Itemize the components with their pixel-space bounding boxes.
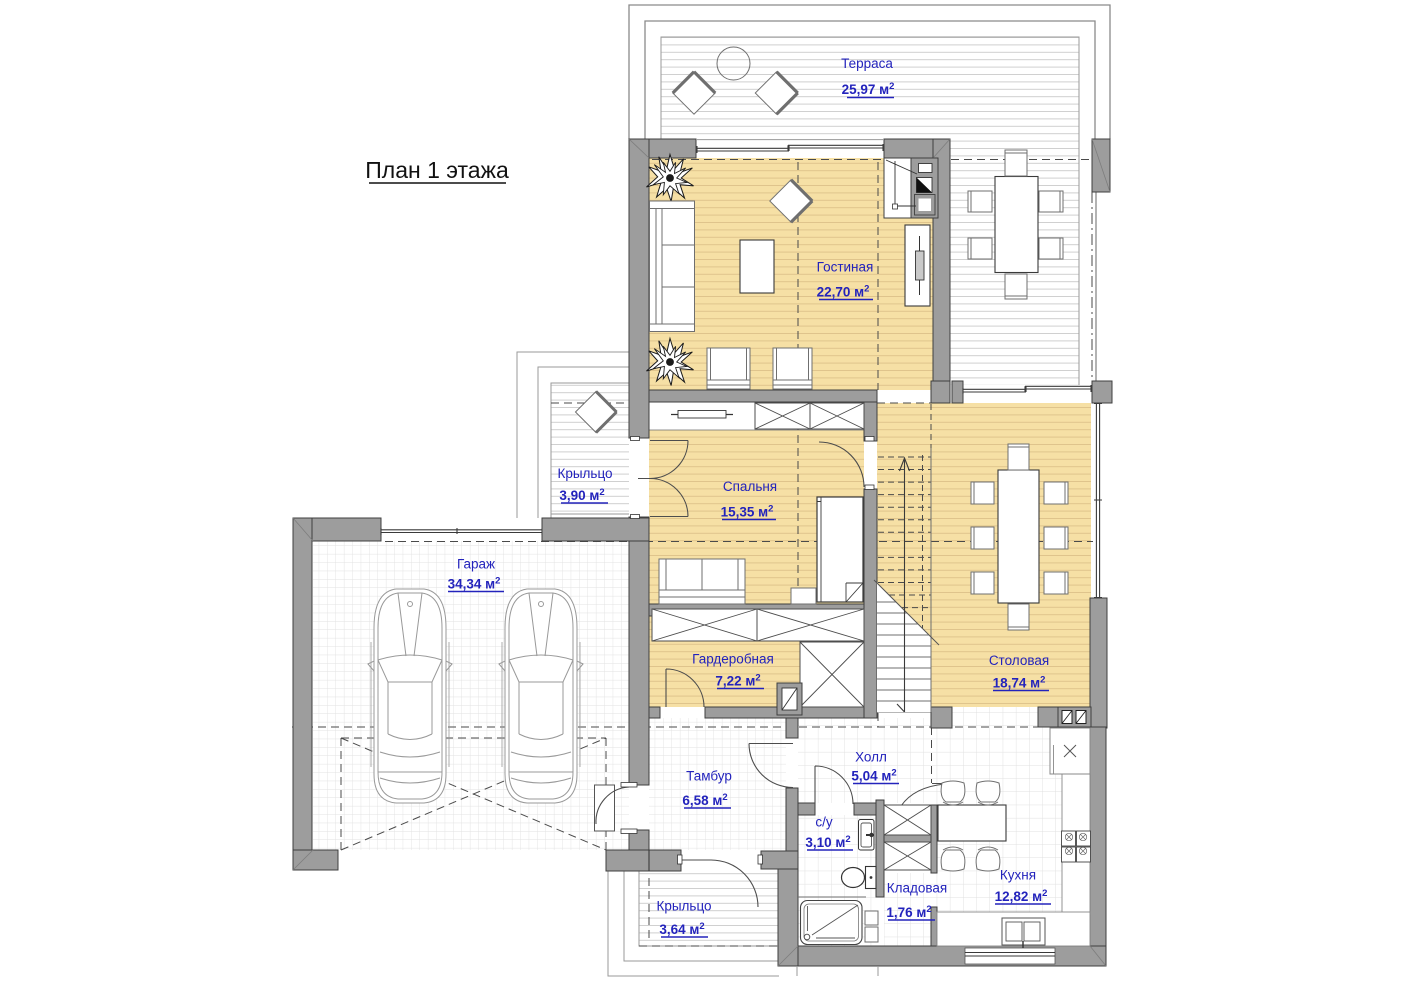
svg-text:Тамбур: Тамбур (686, 769, 732, 784)
svg-text:Спальня: Спальня (723, 479, 777, 494)
svg-text:Гостиная: Гостиная (817, 260, 874, 275)
svg-text:Крыльцо: Крыльцо (656, 899, 711, 914)
svg-text:3,64 м2: 3,64 м2 (659, 921, 704, 937)
svg-text:Гардеробная: Гардеробная (692, 652, 774, 667)
svg-text:7,22 м2: 7,22 м2 (715, 673, 760, 689)
svg-text:Столовая: Столовая (989, 653, 1049, 668)
svg-text:3,10 м2: 3,10 м2 (805, 834, 850, 850)
svg-text:18,74 м2: 18,74 м2 (993, 675, 1046, 691)
svg-text:Кладовая: Кладовая (887, 881, 947, 896)
svg-text:Кухня: Кухня (1000, 868, 1036, 883)
svg-text:План 1 этажа: План 1 этажа (365, 157, 509, 183)
svg-text:1,76 м2: 1,76 м2 (886, 904, 931, 920)
svg-text:6,58 м2: 6,58 м2 (682, 792, 727, 808)
svg-text:34,34 м2: 34,34 м2 (448, 576, 501, 592)
svg-text:22,70 м2: 22,70 м2 (817, 284, 870, 300)
svg-text:25,97 м2: 25,97 м2 (842, 81, 895, 97)
svg-text:Крыльцо: Крыльцо (557, 466, 612, 481)
svg-text:Терраса: Терраса (841, 56, 893, 71)
svg-text:Холл: Холл (855, 750, 887, 765)
svg-text:5,04 м2: 5,04 м2 (851, 768, 896, 784)
svg-text:15,35 м2: 15,35 м2 (721, 504, 774, 520)
svg-text:с/у: с/у (815, 815, 833, 830)
svg-text:3,90 м2: 3,90 м2 (559, 487, 604, 503)
svg-text:Гараж: Гараж (457, 557, 495, 572)
svg-text:12,82 м2: 12,82 м2 (995, 888, 1048, 904)
